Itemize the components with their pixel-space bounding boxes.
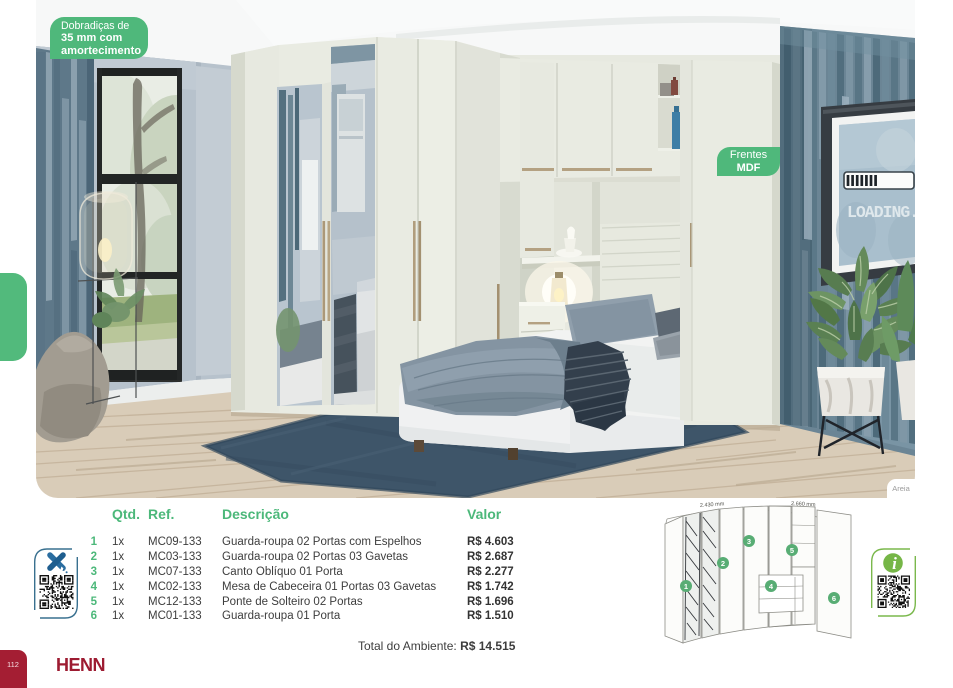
svg-text:3: 3 [747,537,751,546]
svg-text:i: i [892,554,897,573]
svg-text:1: 1 [684,582,688,591]
svg-text:6: 6 [832,594,836,603]
svg-text:LOADING.: LOADING. [847,203,915,222]
svg-text:5: 5 [790,546,794,555]
svg-text:2: 2 [721,559,725,568]
svg-text:2.430 mm: 2.430 mm [700,501,725,509]
